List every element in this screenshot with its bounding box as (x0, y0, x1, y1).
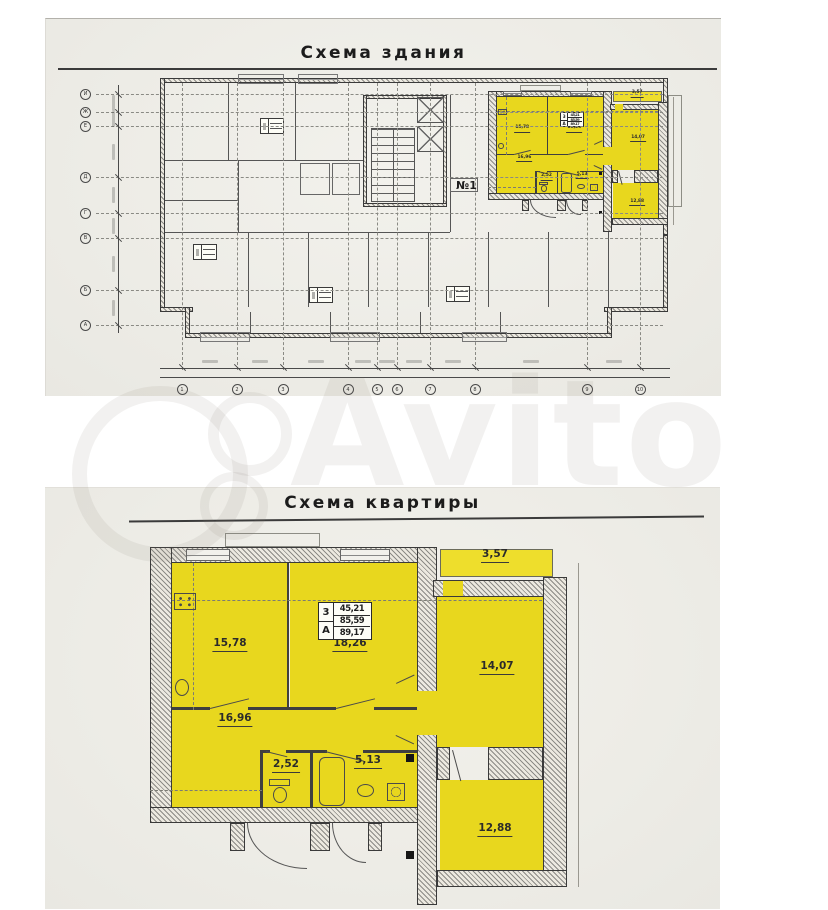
apartment-title-underline (129, 515, 704, 522)
scanned-floorplans-page: Схема здания Схема квартиры 15,7818,2616… (0, 0, 828, 910)
building-plan-sheet: Схема здания (45, 18, 721, 396)
building-plan-title: Схема здания (46, 43, 721, 63)
apartment-plan-title: Схема квартиры (45, 493, 720, 513)
watermark-logo-circle-small (208, 392, 292, 476)
building-title-underline (58, 68, 717, 70)
apartment-number-label: №1 (456, 179, 477, 192)
apartment-plan-sheet: Схема квартиры (45, 487, 720, 909)
